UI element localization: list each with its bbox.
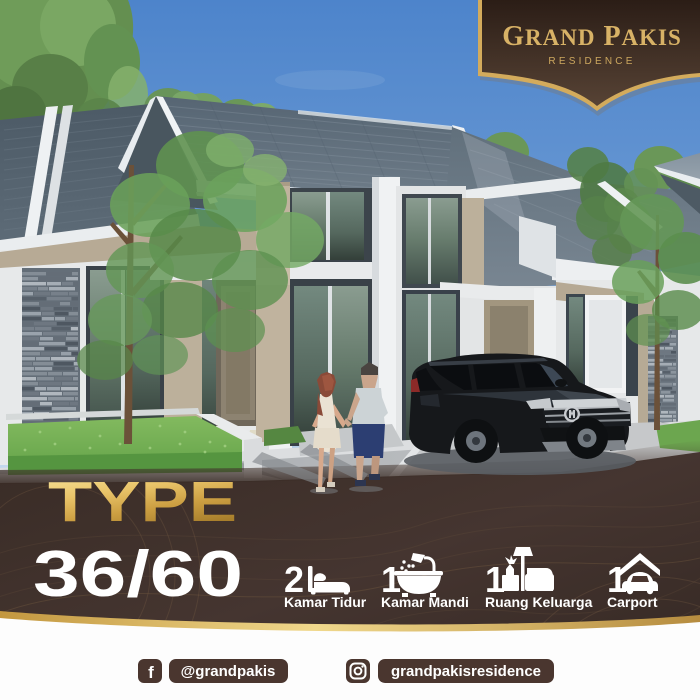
svg-text:f: f	[148, 663, 154, 682]
svg-text:RESIDENCE: RESIDENCE	[548, 56, 635, 67]
svg-text:grandpakisresidence: grandpakisresidence	[391, 663, 541, 680]
svg-text:GRAND PAKIS: GRAND PAKIS	[502, 21, 682, 52]
svg-text:Kamar Tidur: Kamar Tidur	[284, 594, 367, 610]
svg-text:TYPE: TYPE	[48, 470, 237, 534]
svg-text:Ruang Keluarga: Ruang Keluarga	[485, 594, 593, 610]
svg-text:Kamar Mandi: Kamar Mandi	[381, 594, 469, 610]
svg-text:Carport: Carport	[607, 594, 658, 610]
svg-text:36/60: 36/60	[33, 537, 243, 610]
svg-text:@grandpakis: @grandpakis	[181, 663, 276, 680]
